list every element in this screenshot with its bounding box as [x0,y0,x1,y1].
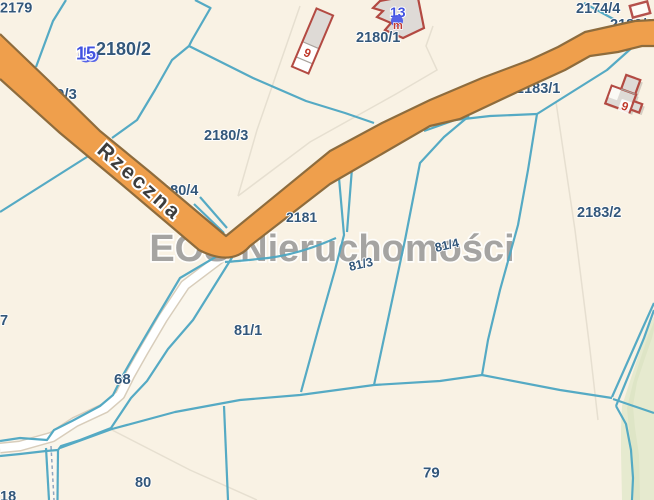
svg-text:18: 18 [0,489,16,500]
svg-text:80: 80 [135,475,151,491]
svg-text:15: 15 [76,44,96,64]
svg-text:2180/1: 2180/1 [356,30,400,46]
svg-text:2179: 2179 [0,1,32,17]
svg-text:2180/3: 2180/3 [204,128,248,144]
svg-text:2181: 2181 [286,209,317,225]
svg-text:81/1: 81/1 [234,323,262,339]
svg-text:68: 68 [114,371,131,388]
svg-text:79: 79 [423,465,440,482]
svg-text:2180/2: 2180/2 [96,39,151,59]
svg-text:7: 7 [0,313,8,329]
svg-text:2174/4: 2174/4 [576,1,620,17]
svg-text:2183/2: 2183/2 [577,205,621,221]
